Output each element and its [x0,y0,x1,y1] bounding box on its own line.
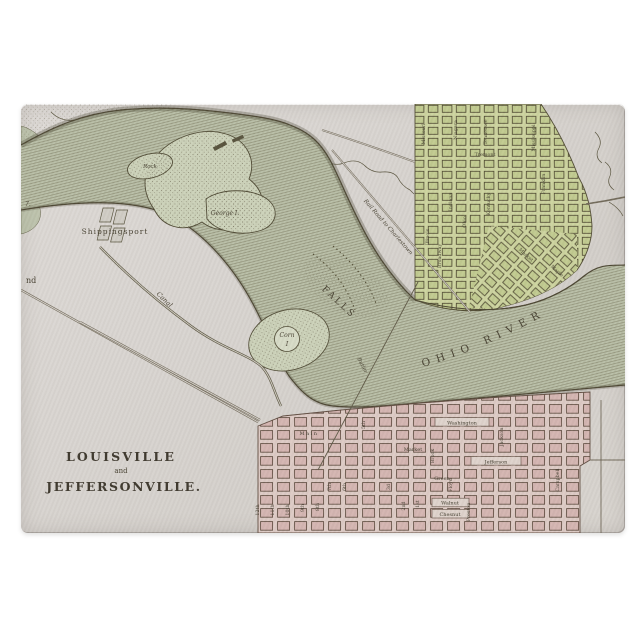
street-label: 5th [361,421,367,429]
street-label: Tremont [475,152,496,158]
title-conjunction: and [114,467,128,475]
street-label: Niagara [453,120,459,140]
street-label: Market [404,447,423,453]
street-label: Missouri [421,123,427,145]
street-label: 2nd [401,501,407,510]
street-label: Indiana [448,193,454,212]
street-label: 10th [285,504,291,515]
street-label: 9th [300,504,306,512]
street-label: Jefferson [484,460,508,466]
street-label: Preston [466,503,472,522]
street-label: Mississippi [531,124,537,152]
creek [605,162,614,190]
road-southwest-2 [80,322,260,420]
street-label: Illinois [425,228,431,245]
street-label: 11th [270,504,276,515]
street-label: Broadway [437,244,443,269]
street-label: 3d [386,484,392,490]
title-line2: JEFFERSONVILLE. [45,479,201,494]
creek [595,132,602,163]
street-label: Chesnut [439,512,460,518]
street-label: Walnut [441,501,459,507]
street-label: Ohio [462,216,468,228]
partial-word-label: nd [26,276,36,285]
street-label: 6th [342,483,348,491]
street-label: Main [300,431,319,437]
road-southwest-1 [21,290,258,422]
glass-cutting-board[interactable]: LOUISVILLE and JEFFERSONVILLE. Shippings… [21,104,625,533]
street-label: Franklin [541,174,547,195]
vintage-map: LOUISVILLE and JEFFERSONVILLE. Shippings… [21,104,625,533]
shippingsport-hamlet [95,208,130,242]
street-label: 8th [315,503,321,511]
partial-number-label: 7. [25,201,31,208]
street-label: Brook [430,449,436,464]
street-label: 7th [327,483,333,491]
street-label: 1st [415,500,421,508]
street-label: 12th [255,504,261,515]
creek [609,202,623,216]
george-island-label: George I. [211,210,239,217]
road-northeast [322,130,415,162]
corn-island-initial: I [285,340,289,348]
street-label: Kentucky [486,192,492,215]
shippingsport-label: Shippingsport [82,227,149,236]
corn-island-label: Corn [280,332,295,339]
street-label: Washington [447,421,478,427]
street-label: Tennessee [483,119,489,144]
street-label: Jackson [499,428,505,448]
title-line1: LOUISVILLE [66,449,176,464]
rock-island-label: Rock [142,164,158,170]
product-photo: LOUISVILLE and JEFFERSONVILLE. Shippings… [0,0,644,644]
street-label: Floyd [448,478,454,492]
street-label: Campbell [555,468,561,492]
road-northeast-exit [586,197,625,204]
